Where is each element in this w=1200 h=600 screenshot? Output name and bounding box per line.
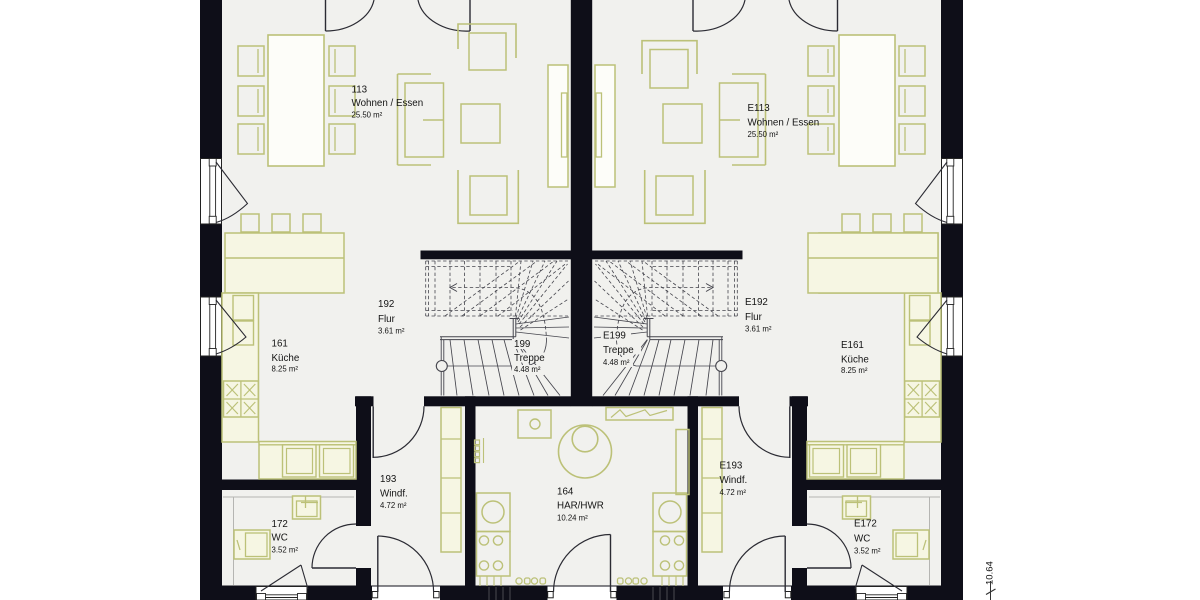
- svg-text:199: 199: [514, 339, 530, 350]
- svg-text:E193: E193: [720, 461, 743, 472]
- svg-text:Windf.: Windf.: [380, 489, 408, 500]
- svg-text:E199: E199: [603, 331, 626, 342]
- svg-text:E161: E161: [841, 340, 864, 351]
- svg-text:25.50 m²: 25.50 m²: [748, 130, 779, 139]
- svg-text:Treppe: Treppe: [603, 345, 634, 356]
- svg-text:3.61 m²: 3.61 m²: [745, 325, 772, 334]
- svg-text:E192: E192: [745, 297, 768, 308]
- svg-text:172: 172: [272, 519, 288, 530]
- svg-text:WC: WC: [272, 533, 288, 544]
- svg-text:161: 161: [272, 339, 288, 350]
- svg-text:4.72 m²: 4.72 m²: [380, 501, 407, 510]
- svg-text:Wohnen / Essen: Wohnen / Essen: [748, 118, 820, 129]
- svg-text:192: 192: [378, 299, 394, 310]
- svg-text:HAR/HWR: HAR/HWR: [557, 501, 604, 512]
- svg-text:3.61 m²: 3.61 m²: [378, 327, 405, 336]
- svg-text:3.52 m²: 3.52 m²: [854, 547, 881, 556]
- svg-text:8.25 m²: 8.25 m²: [272, 365, 299, 374]
- svg-text:4.48 m²: 4.48 m²: [603, 358, 630, 367]
- svg-text:Küche: Küche: [841, 355, 869, 366]
- svg-text:10.24 m²: 10.24 m²: [557, 514, 588, 523]
- svg-text:E113: E113: [748, 103, 771, 114]
- svg-text:Flur: Flur: [378, 314, 396, 325]
- svg-text:Küche: Küche: [272, 353, 300, 364]
- svg-text:8.25 m²: 8.25 m²: [841, 366, 868, 375]
- svg-text:4.72 m²: 4.72 m²: [720, 488, 747, 497]
- svg-text:Flur: Flur: [745, 312, 763, 323]
- svg-text:Windf.: Windf.: [720, 475, 748, 486]
- svg-text:113: 113: [352, 85, 368, 96]
- svg-text:Treppe: Treppe: [514, 353, 545, 364]
- svg-text:WC: WC: [854, 534, 870, 545]
- svg-text:E172: E172: [854, 519, 877, 530]
- svg-text:4.48 m²: 4.48 m²: [514, 365, 541, 374]
- svg-text:25.50 m²: 25.50 m²: [352, 111, 383, 120]
- svg-text:164: 164: [557, 487, 574, 498]
- svg-text:3.52 m²: 3.52 m²: [272, 546, 299, 555]
- svg-text:193: 193: [380, 474, 397, 485]
- svg-text:Wohnen / Essen: Wohnen / Essen: [352, 98, 424, 109]
